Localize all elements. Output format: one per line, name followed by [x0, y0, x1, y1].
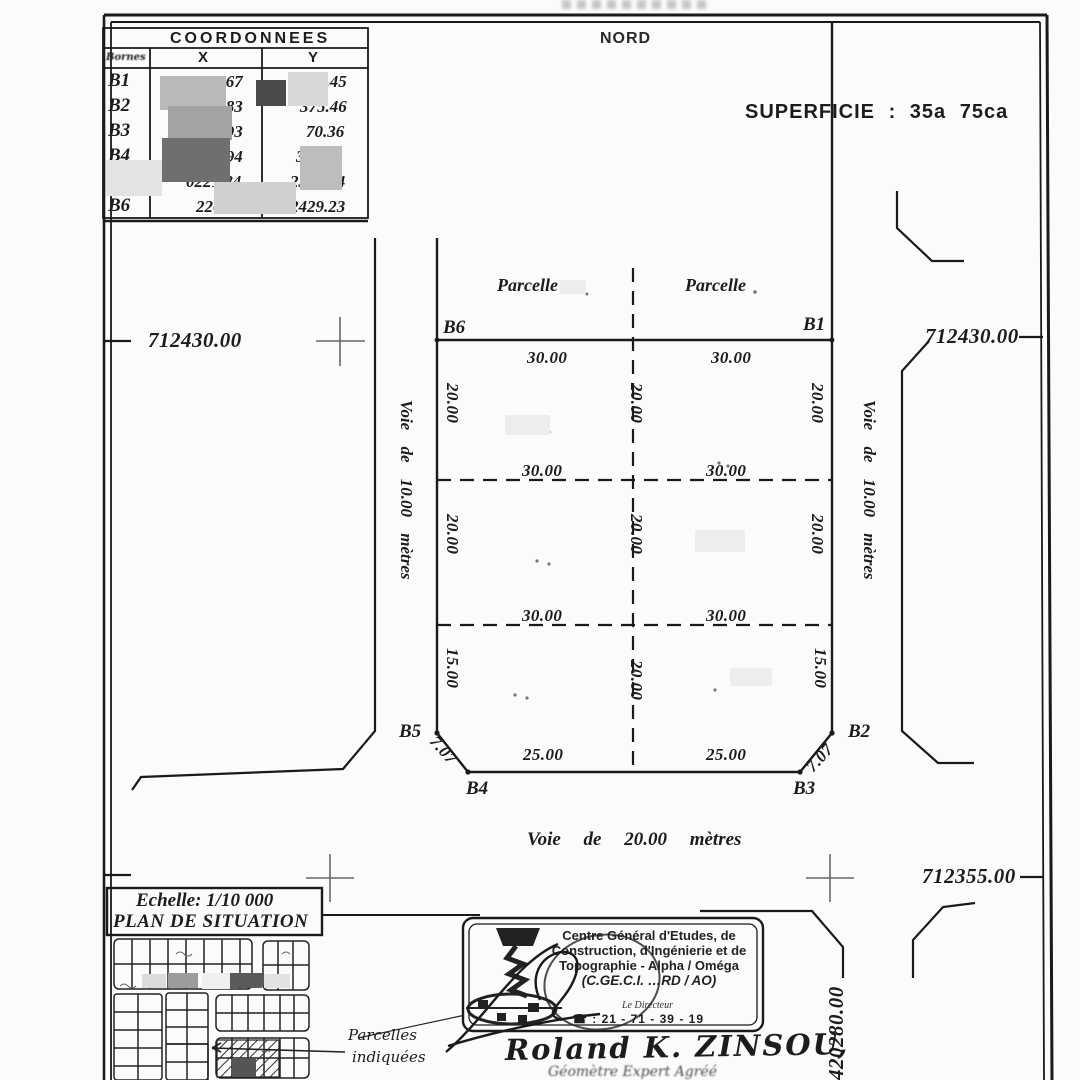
- redaction-block: [168, 106, 232, 140]
- dim-right-3: 15.00: [810, 648, 830, 688]
- gridline-right-712430: 712430.00: [925, 324, 1019, 349]
- corner-label-b1: B1: [803, 314, 825, 336]
- superficie-label: SUPERFICIE : 35a 75ca: [745, 101, 1008, 124]
- dim-chamfer-left: 7.07: [425, 732, 461, 769]
- table-header-y: Y: [308, 49, 318, 66]
- surveyor-name: Roland K. ZINSOU,: [505, 1027, 850, 1067]
- stamp-director: Le Directeur: [622, 1000, 673, 1011]
- dim-center-1: 20.00: [626, 383, 646, 423]
- redaction-block: [106, 160, 162, 196]
- dim-right-1: 20.00: [807, 383, 827, 423]
- situation-redactions: [142, 973, 290, 989]
- dim-chamfer-right: 7.07: [802, 740, 838, 777]
- situation-scale: Echelle: 1/10 000: [136, 890, 273, 912]
- surveyor-title: Géomètre Expert Agréé: [548, 1064, 717, 1080]
- situation-indicated-parcels: [166, 1040, 279, 1080]
- borne-id: B1: [108, 70, 130, 92]
- situation-scribbles: [120, 952, 290, 1052]
- dim-bottom-2: 25.00: [706, 745, 746, 765]
- stamp-line-3: Topographie - Alpha / Oméga: [540, 958, 758, 973]
- gridline-left-712430: 712430.00: [148, 328, 242, 353]
- dim-left-1: 20.00: [442, 383, 462, 423]
- redaction-block: [162, 138, 230, 182]
- dim-left-2: 20.00: [442, 514, 462, 554]
- redaction-block: [160, 76, 226, 110]
- borne-y: 2429.23: [290, 197, 345, 217]
- redaction-block: [300, 146, 342, 190]
- corner-label-b5: B5: [399, 721, 421, 743]
- table-title: COORDONNEES: [170, 30, 330, 48]
- stamp-phone: ☎ : 21 - 71 - 39 - 19: [572, 1012, 704, 1026]
- cut-off-title-blur: [562, 0, 710, 9]
- corner-label-b3: B3: [793, 778, 815, 800]
- dim-row2-2: 30.00: [706, 606, 746, 626]
- situation-title: PLAN DE SITUATION: [113, 911, 308, 933]
- gridline-right-712355: 712355.00: [922, 864, 1016, 889]
- table-header-x: X: [198, 49, 208, 66]
- stamp-line-4: (C.GE.C.I. …RD / AO): [540, 973, 758, 988]
- erasure-smudge: [730, 668, 772, 686]
- corner-label-b6: B6: [443, 317, 465, 339]
- dim-bottom-1: 25.00: [523, 745, 563, 765]
- dim-row1-2: 30.00: [706, 461, 746, 481]
- dim-row2-1: 30.00: [522, 606, 562, 626]
- callout-leader-line: [212, 1014, 470, 1052]
- situation-map-grid: [114, 939, 309, 1080]
- grid-ticks: [104, 337, 1043, 877]
- borne-id: B2: [108, 95, 130, 117]
- grid-crosses: [306, 317, 854, 902]
- erasure-smudge: [560, 280, 586, 294]
- dim-center-3: 20.00: [626, 660, 646, 700]
- west-road-edge: [132, 238, 375, 790]
- survey-plan-document: COORDONNEES Bornes X Y B1 280.67 430.45 …: [0, 0, 1080, 1080]
- road-label-east: Voie de 10.00 mètres: [859, 400, 879, 580]
- road-label-south: Voie de 20.00 mètres: [527, 829, 741, 851]
- redaction-block: [288, 72, 328, 106]
- table-header-bornes: Bornes: [106, 52, 146, 63]
- parcel-label-left: Parcelle: [497, 275, 558, 296]
- east-neighbour-blocks: [897, 191, 974, 763]
- erasure-smudge: [695, 530, 745, 552]
- stamp-text-block: Centre Général d'Etudes, de Construction…: [540, 928, 758, 988]
- parcel-label-right: Parcelle: [685, 275, 746, 296]
- dim-row1-1: 30.00: [522, 461, 562, 481]
- road-label-west: Voie de 10.00 mètres: [396, 400, 416, 580]
- stamp-line-1: Centre Général d'Etudes, de: [540, 928, 758, 943]
- erasure-smudge: [505, 415, 550, 435]
- dim-center-2: 20.00: [626, 514, 646, 554]
- corner-label-b4: B4: [466, 778, 488, 800]
- borne-y: 70.36: [306, 122, 344, 142]
- callout-parcelles: Parcelles: [348, 1026, 417, 1044]
- callout-indiquees: indiquées: [352, 1048, 426, 1066]
- redaction-block: [256, 80, 286, 106]
- dim-top-2: 30.00: [711, 348, 751, 368]
- dim-top-1: 30.00: [527, 348, 567, 368]
- north-label: NORD: [600, 30, 651, 48]
- borne-id: B6: [108, 195, 130, 217]
- stamp-line-2: Construction, d'Ingénierie et de: [540, 943, 758, 958]
- redaction-block: [214, 182, 296, 214]
- dim-right-2: 20.00: [807, 514, 827, 554]
- dim-left-3: 15.00: [442, 648, 462, 688]
- borne-id: B3: [108, 120, 130, 142]
- corner-label-b2: B2: [848, 721, 870, 743]
